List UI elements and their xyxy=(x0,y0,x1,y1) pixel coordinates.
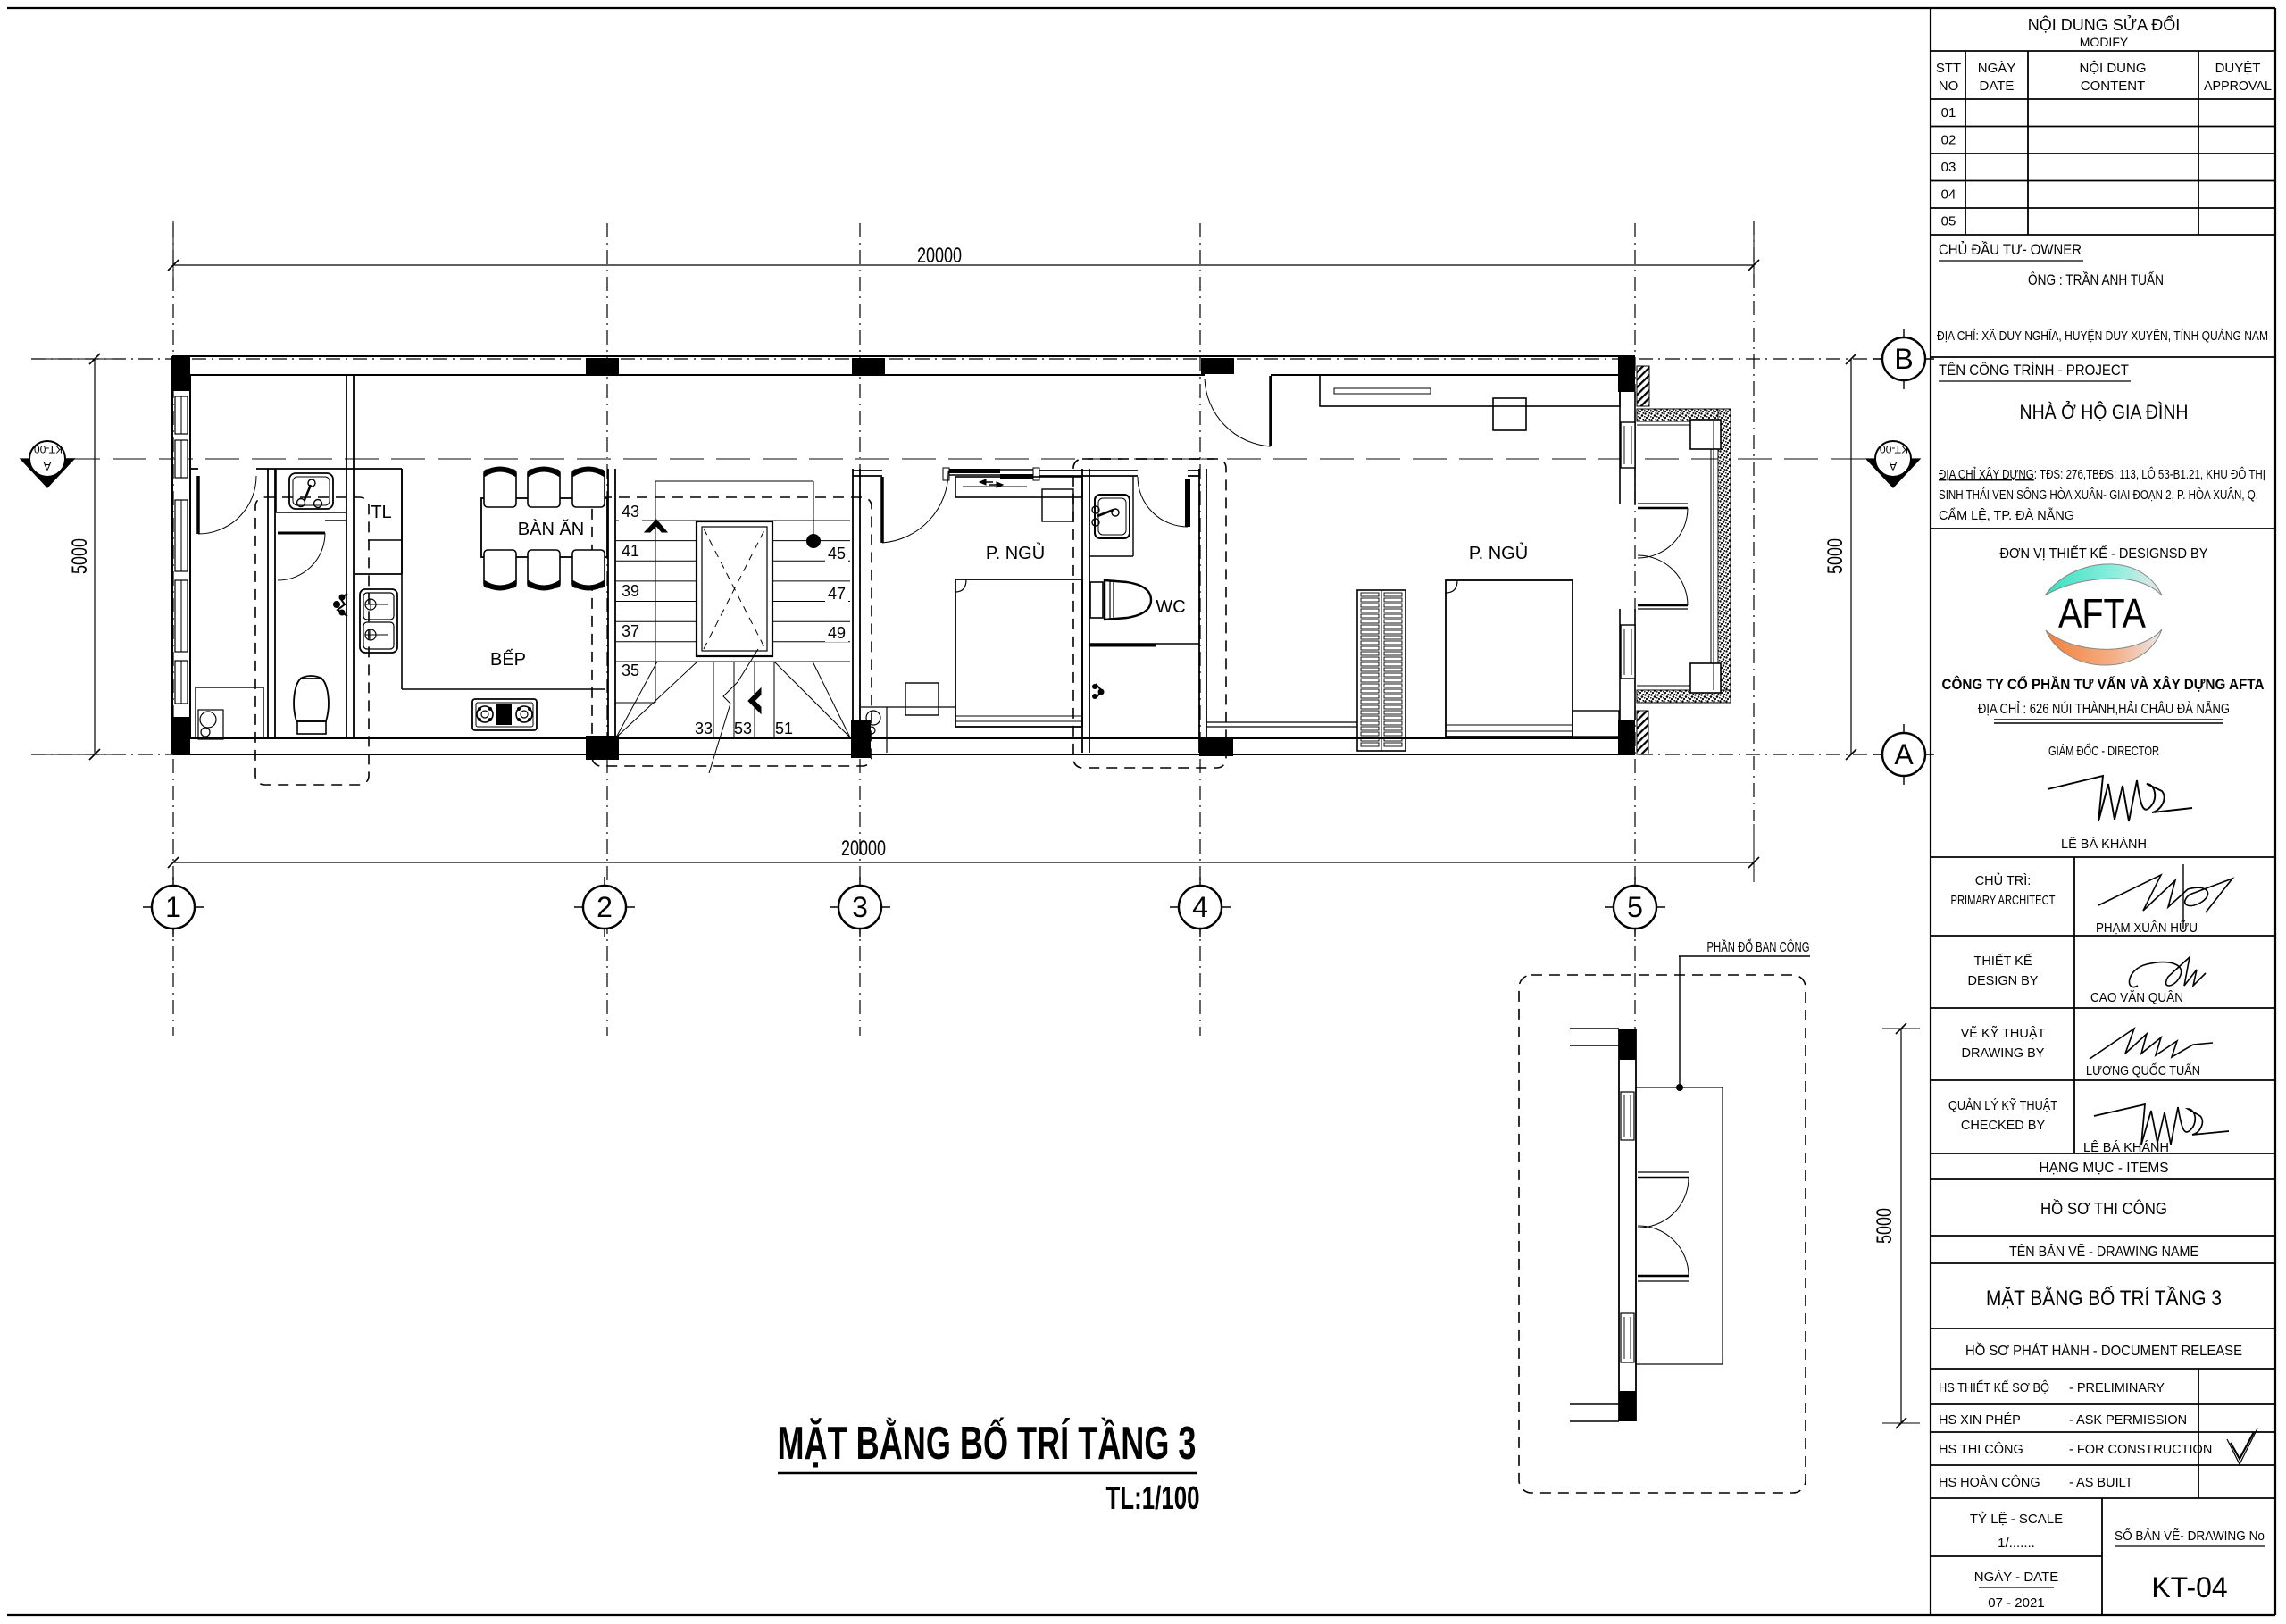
svg-text:HS THI CÔNG: HS THI CÔNG xyxy=(1939,1442,2023,1457)
svg-text:33: 33 xyxy=(695,720,713,737)
svg-text:A: A xyxy=(1894,738,1914,770)
svg-text:CHỦ TRÌ:: CHỦ TRÌ: xyxy=(1975,872,2032,888)
svg-text:43: 43 xyxy=(622,503,639,521)
svg-text:5000: 5000 xyxy=(1823,538,1848,574)
svg-text:A: A xyxy=(1889,459,1898,473)
svg-text:- ASK PERMISSION: - ASK PERMISSION xyxy=(2069,1413,2187,1428)
svg-text:CHECKED BY: CHECKED BY xyxy=(1961,1119,2046,1133)
svg-text:NO: NO xyxy=(1939,79,1959,94)
svg-text:02: 02 xyxy=(1941,133,1956,148)
svg-text:51: 51 xyxy=(775,720,793,737)
svg-text:NHÀ Ở HỘ GIA ĐÌNH: NHÀ Ở HỘ GIA ĐÌNH xyxy=(2020,401,2189,423)
svg-text:2: 2 xyxy=(597,891,613,923)
svg-text:HỒ SƠ PHÁT HÀNH - DOCUMENT REL: HỒ SƠ PHÁT HÀNH - DOCUMENT RELEASE xyxy=(1965,1342,2242,1359)
svg-text:THIẾT KẾ: THIẾT KẾ xyxy=(1974,954,2032,969)
svg-text:CHỦ ĐẦU TƯ- OWNER: CHỦ ĐẦU TƯ- OWNER xyxy=(1939,241,2082,258)
svg-text:49: 49 xyxy=(828,624,846,642)
svg-text:1/.......: 1/....... xyxy=(1998,1536,2035,1551)
svg-text:1: 1 xyxy=(165,891,181,923)
svg-text:DUYỆT: DUYỆT xyxy=(2215,61,2261,76)
svg-text:PRIMARY ARCHITECT: PRIMARY ARCHITECT xyxy=(1951,894,2056,908)
svg-text:HS XIN PHÉP: HS XIN PHÉP xyxy=(1939,1412,2021,1428)
svg-text:HỒ SƠ THI CÔNG: HỒ SƠ THI CÔNG xyxy=(2040,1199,2167,1218)
svg-text:APPROVAL: APPROVAL xyxy=(2204,79,2272,94)
svg-text:ÔNG : TRẦN ANH TUẤN: ÔNG : TRẦN ANH TUẤN xyxy=(2028,271,2164,288)
svg-text:CAO VĂN QUÂN: CAO VĂN QUÂN xyxy=(2090,990,2183,1005)
svg-text:3: 3 xyxy=(852,891,868,923)
svg-text:KT-04: KT-04 xyxy=(2151,1571,2227,1603)
svg-text:- PRELIMINARY: - PRELIMINARY xyxy=(2069,1381,2165,1395)
svg-text:DESIGN BY: DESIGN BY xyxy=(1968,974,2039,988)
svg-text:LƯƠNG QUỐC TUẤN: LƯƠNG QUỐC TUẤN xyxy=(2086,1062,2200,1079)
svg-text:B: B xyxy=(1894,343,1913,375)
svg-text:NGÀY - DATE: NGÀY - DATE xyxy=(1974,1570,2058,1585)
svg-text:NỘI DUNG SỬA ĐỔI: NỘI DUNG SỬA ĐỔI xyxy=(2028,15,2180,34)
svg-text:MẶT BẰNG BỐ TRÍ TẦNG 3: MẶT BẰNG BỐ TRÍ TẦNG 3 xyxy=(1986,1286,2222,1311)
svg-text:P. NGỦ: P. NGỦ xyxy=(1469,542,1528,563)
svg-text:TL: TL xyxy=(371,503,391,522)
svg-text:P. NGỦ: P. NGỦ xyxy=(986,542,1045,563)
svg-text:TÊN BẢN VẼ - DRAWING NAME: TÊN BẢN VẼ - DRAWING NAME xyxy=(2009,1242,2198,1260)
svg-text:VẼ KỸ THUẬT: VẼ KỸ THUẬT xyxy=(1961,1026,2046,1041)
svg-text:MẶT BẰNG BỐ TRÍ TẦNG 3: MẶT BẰNG BỐ TRÍ TẦNG 3 xyxy=(778,1417,1197,1470)
svg-text:53: 53 xyxy=(734,720,752,737)
svg-text:05: 05 xyxy=(1941,214,1956,229)
svg-text:PHẠM XUÂN HỮU: PHẠM XUÂN HỮU xyxy=(2096,920,2198,936)
svg-text:01: 01 xyxy=(1941,105,1956,121)
svg-text:NỘI DUNG: NỘI DUNG xyxy=(2080,61,2147,76)
svg-text:KT-00: KT-00 xyxy=(34,443,63,455)
svg-text:20000: 20000 xyxy=(917,244,962,268)
svg-text:03: 03 xyxy=(1941,160,1956,175)
svg-text:HS HOÀN CÔNG: HS HOÀN CÔNG xyxy=(1939,1475,2040,1490)
svg-text:37: 37 xyxy=(622,622,639,640)
svg-text:45: 45 xyxy=(828,545,846,562)
svg-text:5000: 5000 xyxy=(68,538,92,574)
svg-text:41: 41 xyxy=(622,542,639,560)
svg-text:LÊ BÁ KHÁNH: LÊ BÁ KHÁNH xyxy=(2083,1140,2169,1155)
svg-text:KT-00: KT-00 xyxy=(1880,443,1908,455)
svg-text:SINH THÁI VEN SÔNG HÒA XUÂN- G: SINH THÁI VEN SÔNG HÒA XUÂN- GIAI ĐOẠN 2… xyxy=(1939,487,2258,503)
svg-text:5: 5 xyxy=(1627,891,1643,923)
svg-text:A: A xyxy=(43,459,52,473)
svg-text:WC: WC xyxy=(1156,597,1185,617)
svg-text:TL:1/100: TL:1/100 xyxy=(1106,1479,1200,1516)
svg-text:GIÁM ĐỐC - DIRECTOR: GIÁM ĐỐC - DIRECTOR xyxy=(2048,743,2159,759)
svg-text:ĐỊA CHỈ : 626 NÚI THÀNH,HẢI CH: ĐỊA CHỈ : 626 NÚI THÀNH,HẢI CHÂU ĐÀ NẴNG xyxy=(1978,700,2230,717)
svg-text:47: 47 xyxy=(828,585,846,603)
svg-text:MODIFY: MODIFY xyxy=(2080,35,2129,49)
svg-text:AFTA: AFTA xyxy=(2058,590,2146,637)
svg-text:CÔNG TY CỔ PHẦN TƯ VẤN VÀ XÂY: CÔNG TY CỔ PHẦN TƯ VẤN VÀ XÂY DỰNG AFTA xyxy=(1942,676,2265,693)
svg-text:HẠNG MỤC - ITEMS: HẠNG MỤC - ITEMS xyxy=(2040,1161,2169,1176)
svg-text:04: 04 xyxy=(1941,187,1956,203)
svg-text:TỶ LỆ - SCALE: TỶ LỆ - SCALE xyxy=(1970,1512,2063,1527)
svg-text:ĐỊA CHỈ: XÃ DUY NGHĨA, HUYỆN: ĐỊA CHỈ: XÃ DUY NGHĨA, HUYỆN DUY XUYÊN, … xyxy=(1937,329,2268,344)
svg-text:CẨM LỆ, TP. ĐÀ NẴNG: CẨM LỆ, TP. ĐÀ NẴNG xyxy=(1939,507,2074,523)
svg-text:HS THIẾT KẾ SƠ BỘ: HS THIẾT KẾ SƠ BỘ xyxy=(1939,1380,2049,1395)
svg-text:DRAWING BY: DRAWING BY xyxy=(1962,1046,2045,1061)
svg-text:DATE: DATE xyxy=(1980,79,2015,94)
svg-text:- AS BUILT: - AS BUILT xyxy=(2069,1476,2133,1490)
svg-text:ĐỊA CHỈ XÂY DỰNG: TĐS: 276,TBĐ: ĐỊA CHỈ XÂY DỰNG: TĐS: 276,TBĐS: 113, LÔ… xyxy=(1939,467,2265,482)
svg-text:STT: STT xyxy=(1936,61,1961,76)
svg-text:4: 4 xyxy=(1192,891,1208,923)
svg-text:SỐ BẢN VẼ- DRAWING No: SỐ BẢN VẼ- DRAWING No xyxy=(2115,1528,2265,1544)
svg-text:QUẢN LÝ KỸ THUẬT: QUẢN LÝ KỸ THUẬT xyxy=(1948,1098,2057,1113)
svg-text:PHẦN ĐỔ BAN CÔNG: PHẦN ĐỔ BAN CÔNG xyxy=(1707,938,1810,955)
svg-text:35: 35 xyxy=(622,662,639,679)
svg-text:TÊN CÔNG TRÌNH - PROJECT: TÊN CÔNG TRÌNH - PROJECT xyxy=(1939,362,2129,379)
svg-text:LÊ BÁ KHÁNH: LÊ BÁ KHÁNH xyxy=(2061,837,2147,852)
svg-text:07 - 2021: 07 - 2021 xyxy=(1988,1595,2044,1611)
svg-text:CONTENT: CONTENT xyxy=(2081,79,2146,94)
svg-text:20000: 20000 xyxy=(841,837,886,861)
svg-text:NGÀY: NGÀY xyxy=(1978,61,2016,76)
svg-text:ĐƠN VỊ THIẾT KẾ - DESIGNSD BY: ĐƠN VỊ THIẾT KẾ - DESIGNSD BY xyxy=(2000,545,2208,562)
svg-text:- FOR CONSTRUCTION: - FOR CONSTRUCTION xyxy=(2069,1443,2212,1457)
svg-text:BÀN ĂN: BÀN ĂN xyxy=(518,519,584,539)
svg-text:BẾP: BẾP xyxy=(490,649,526,670)
svg-text:39: 39 xyxy=(622,582,639,600)
svg-text:5000: 5000 xyxy=(1873,1208,1897,1244)
